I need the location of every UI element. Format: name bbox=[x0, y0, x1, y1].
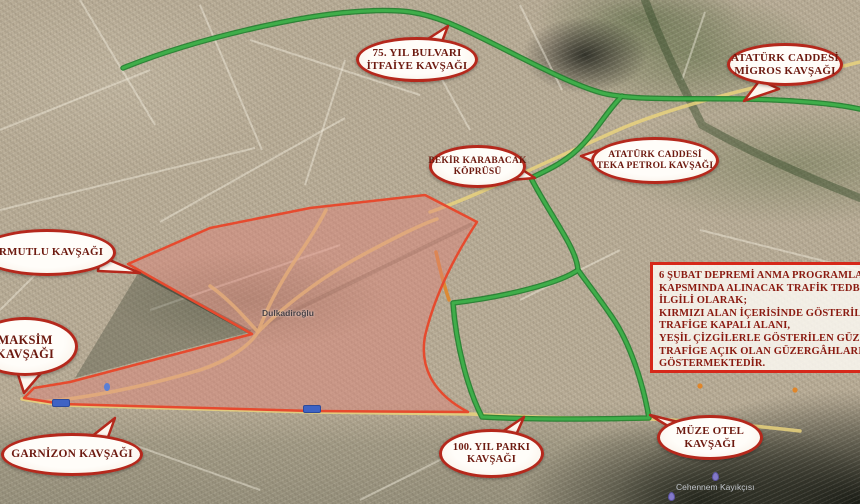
poi-marker-icon bbox=[712, 472, 719, 481]
callout-line: MÜZE OTEL bbox=[676, 425, 744, 437]
callout-line: ATATÜRK CADDESİ bbox=[731, 52, 839, 64]
callout-line: İTFAİYE KAVŞAĞI bbox=[367, 60, 468, 72]
callout-ataturk-caddesi-teka-petrol-kavsagi: ATATÜRK CADDESİ TEKA PETROL KAVŞAĞI bbox=[591, 137, 719, 184]
road-shield-icon bbox=[52, 399, 70, 407]
callout-line: MİGROS KAVŞAĞI bbox=[734, 65, 835, 77]
poi-marker-icon bbox=[668, 492, 675, 501]
callout-100-yil-parki-kavsagi: 100. YIL PARKI KAVŞAĞI bbox=[439, 429, 544, 478]
notice-line: YEŞİL ÇİZGİLERLE GÖSTERİLEN GÜZERGÂHLARI bbox=[659, 333, 860, 346]
callout-line: TEKA PETROL KAVŞAĞI bbox=[597, 161, 714, 172]
callout-line: ARMUTLU KAVŞAĞI bbox=[0, 246, 103, 258]
poi-icon bbox=[697, 383, 702, 388]
callout-75yil-bulvari-itfaiye-kavsagi: 75. YIL BULVARI İTFAİYE KAVŞAĞI bbox=[356, 37, 478, 82]
landmark-label: Cehennem Kayıkçısı bbox=[676, 482, 754, 492]
callout-line: ATATÜRK CADDESİ bbox=[608, 150, 702, 161]
callout-line: GARNİZON KAVŞAĞI bbox=[11, 448, 133, 461]
callout-garnizon-kavsagi: GARNİZON KAVŞAĞI bbox=[1, 433, 143, 476]
notice-line: İLGİLİ OLARAK; bbox=[659, 295, 860, 308]
callout-line: KAVŞAĞI bbox=[0, 347, 54, 361]
traffic-notice-box: 6 ŞUBAT DEPREMİ ANMA PROGRAMLARI KAPSMIN… bbox=[650, 262, 860, 373]
callout-bekir-karabacak-koprusu: BEKİR KARABACAK KÖPRÜSÜ bbox=[429, 145, 526, 188]
callout-line: MAKSİM bbox=[0, 333, 53, 347]
notice-line: TRAFİGE KAPALI ALANI, bbox=[659, 320, 860, 333]
callout-line: 75. YIL BULVARI bbox=[372, 47, 461, 59]
traffic-measures-map: Dulkadiroğlu Cehennem Kayıkçısı 75. YIL … bbox=[0, 0, 860, 504]
district-label: Dulkadiroğlu bbox=[262, 308, 314, 318]
notice-line: KAPSMINDA ALINACAK TRAFİK TEDBİRLERİ İLE bbox=[659, 283, 860, 296]
closed-area-polygon bbox=[24, 195, 477, 412]
map-marker-icon bbox=[104, 383, 110, 391]
callout-line: 100. YIL PARKI bbox=[453, 442, 530, 454]
notice-line: KIRMIZI ALAN İÇERİSİNDE GÖSTERİLEN BÖLGE bbox=[659, 308, 860, 321]
callout-ataturk-caddesi-migros-kavsagi: ATATÜRK CADDESİ MİGROS KAVŞAĞI bbox=[727, 43, 843, 86]
notice-line: TRAFİGE AÇIK OLAN GÜZERGÂHLARI bbox=[659, 346, 860, 359]
notice-line: 6 ŞUBAT DEPREMİ ANMA PROGRAMLARI bbox=[659, 270, 860, 283]
callout-line: KAVŞAĞI bbox=[467, 454, 516, 466]
callout-line: KÖPRÜSÜ bbox=[454, 167, 502, 178]
callout-muze-otel-kavsagi: MÜZE OTEL KAVŞAĞI bbox=[657, 415, 763, 460]
road-shield-icon bbox=[303, 405, 321, 413]
notice-line: GÖSTERMEKTEDİR. bbox=[659, 358, 860, 371]
poi-icon bbox=[792, 387, 797, 392]
callout-line: KAVŞAĞI bbox=[684, 438, 735, 450]
callout-line: BEKİR KARABACAK bbox=[428, 156, 526, 167]
